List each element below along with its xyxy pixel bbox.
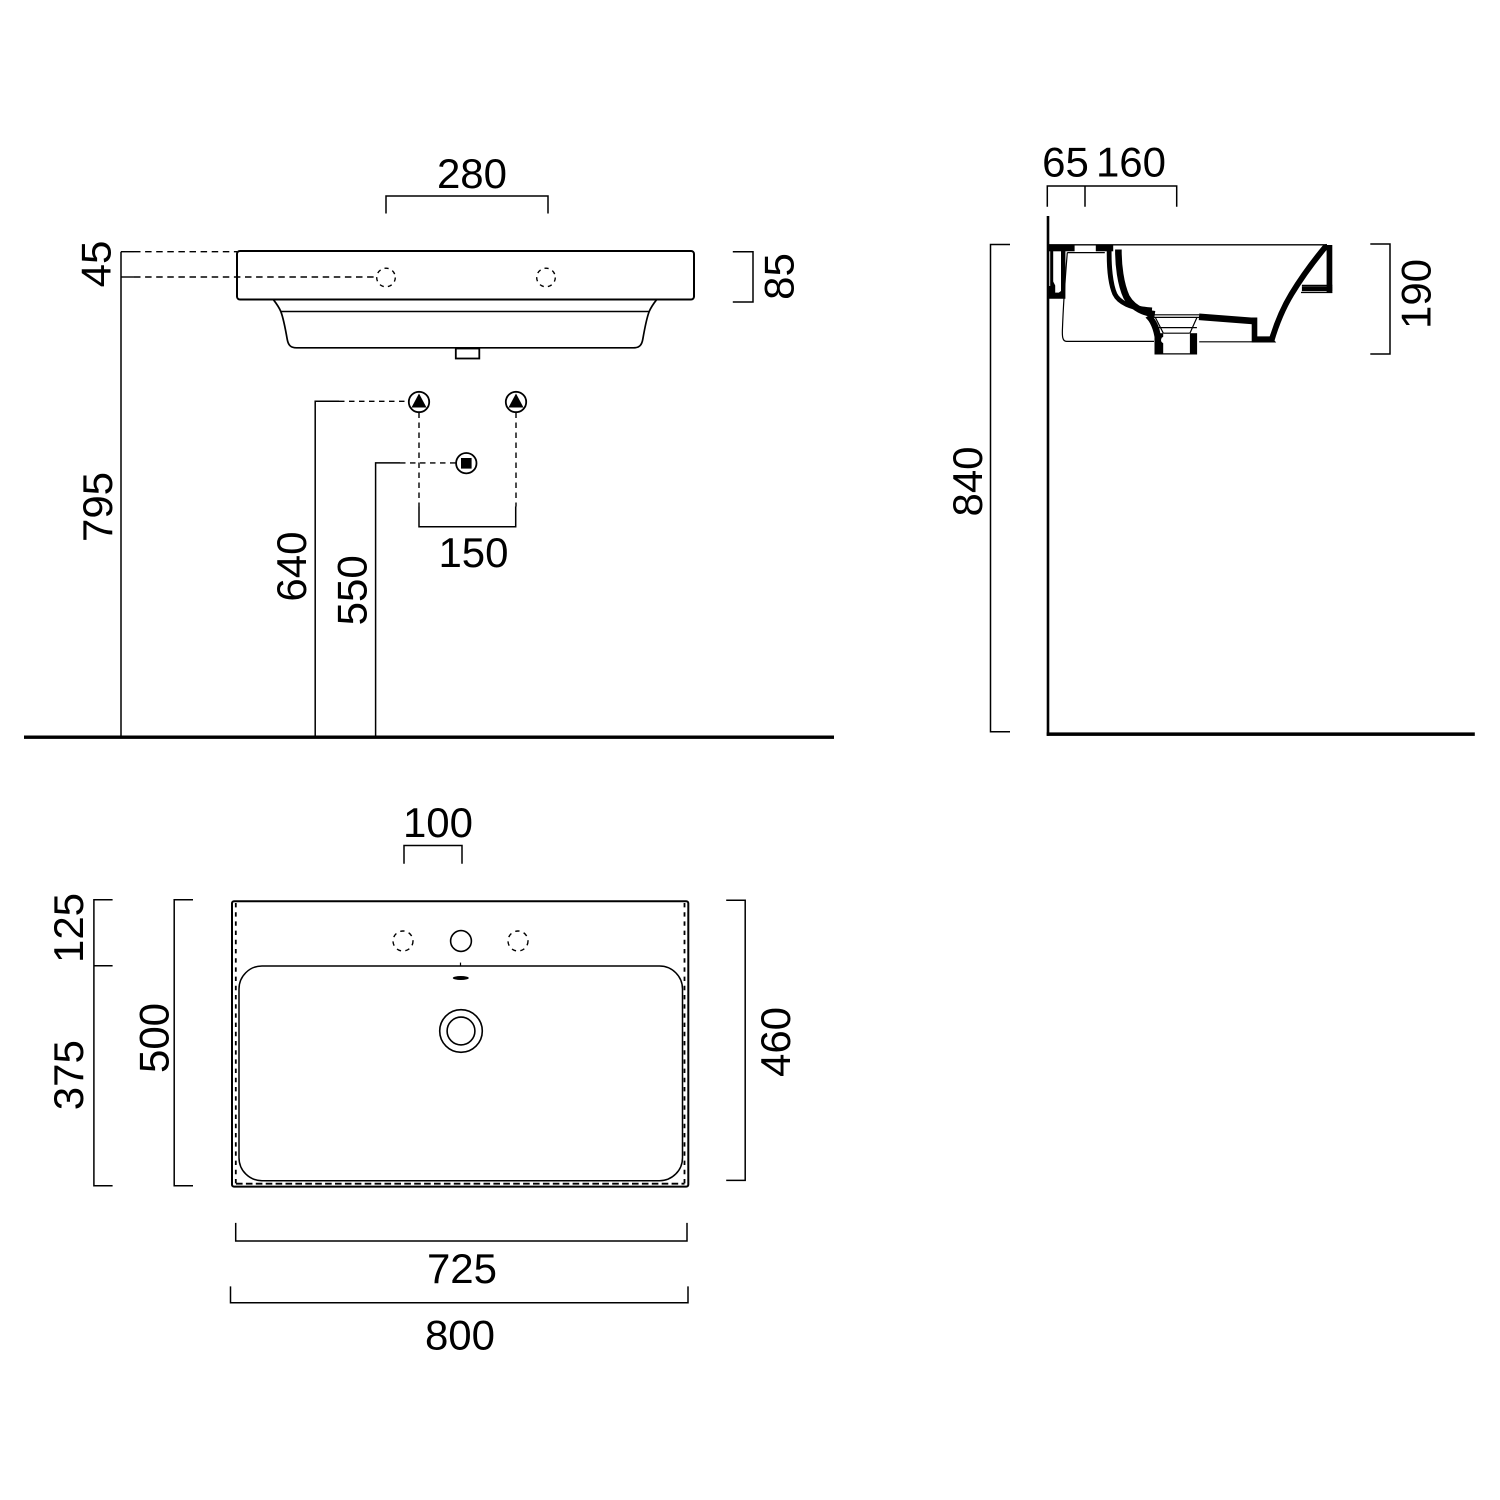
svg-text:150: 150: [438, 529, 508, 576]
svg-text:280: 280: [437, 150, 507, 197]
svg-text:640: 640: [268, 532, 315, 602]
svg-text:375: 375: [45, 1040, 92, 1110]
svg-text:190: 190: [1392, 259, 1439, 329]
svg-text:500: 500: [130, 1003, 177, 1073]
svg-text:100: 100: [403, 799, 473, 846]
svg-text:460: 460: [752, 1007, 799, 1077]
svg-text:85: 85: [756, 253, 803, 300]
svg-text:725: 725: [427, 1245, 497, 1292]
svg-text:125: 125: [45, 893, 92, 963]
svg-text:800: 800: [425, 1312, 495, 1359]
svg-text:550: 550: [329, 555, 376, 625]
svg-text:840: 840: [944, 446, 991, 516]
svg-text:795: 795: [74, 472, 121, 542]
svg-text:45: 45: [73, 241, 120, 288]
svg-text:65: 65: [1042, 139, 1089, 186]
svg-text:160: 160: [1096, 139, 1166, 186]
